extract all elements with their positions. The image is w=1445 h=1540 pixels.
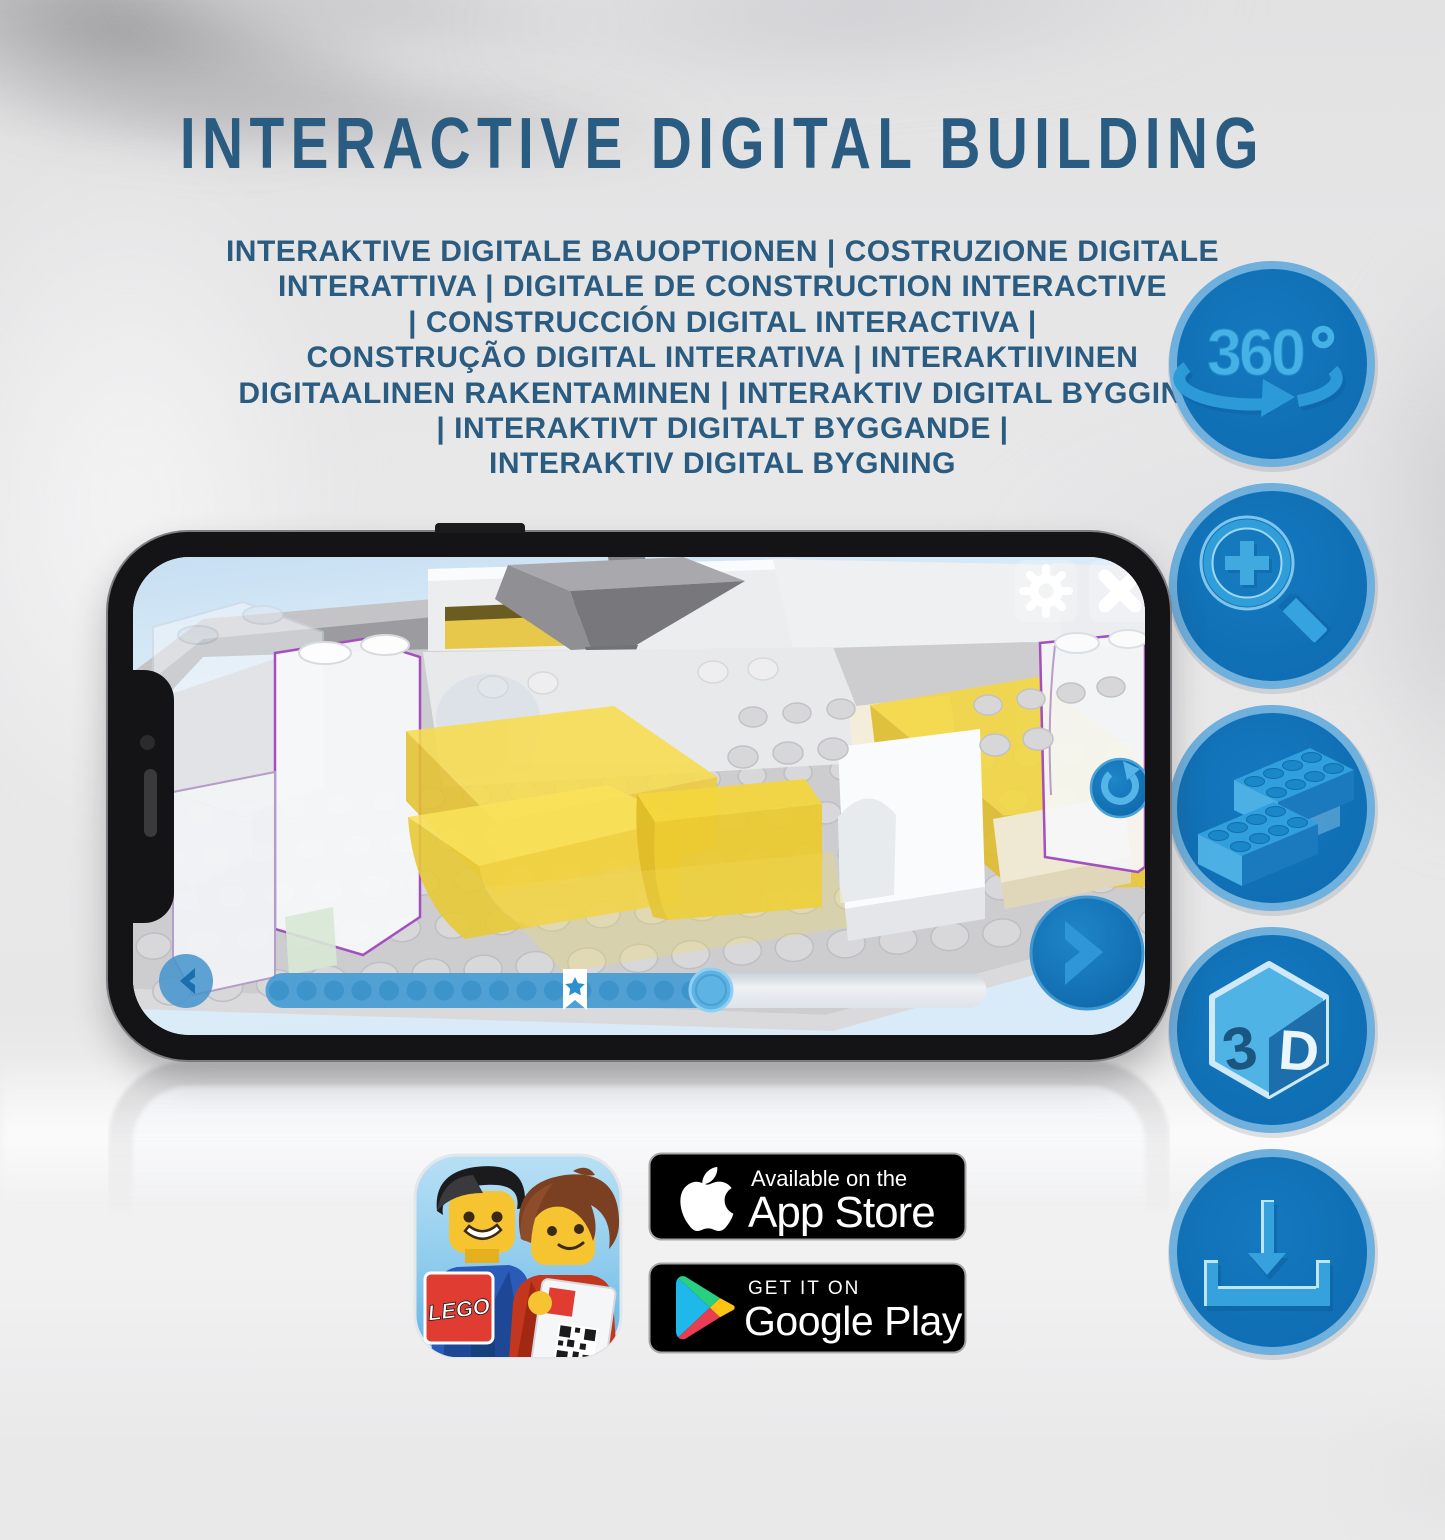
svg-text:App Store: App Store [748,1188,935,1237]
svg-text:Google Play: Google Play [744,1298,963,1344]
svg-text:D: D [1277,1018,1322,1084]
svg-text:GET IT ON: GET IT ON [748,1278,860,1299]
svg-text:360: 360 [1207,316,1304,390]
